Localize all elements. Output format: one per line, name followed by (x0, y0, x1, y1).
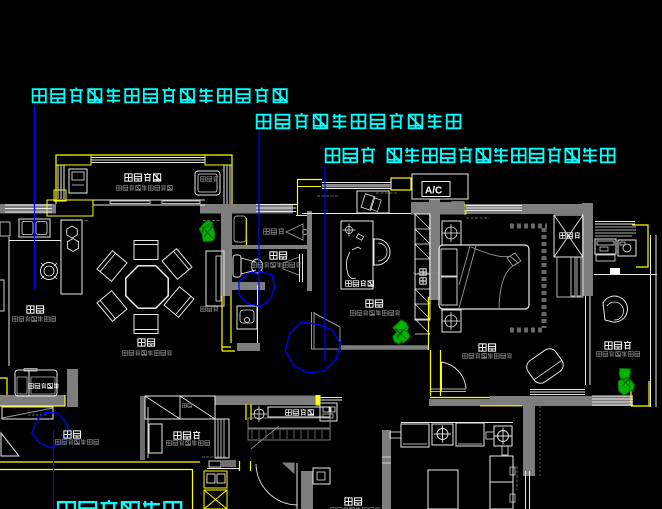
svg-text:A/C: A/C (425, 186, 442, 197)
